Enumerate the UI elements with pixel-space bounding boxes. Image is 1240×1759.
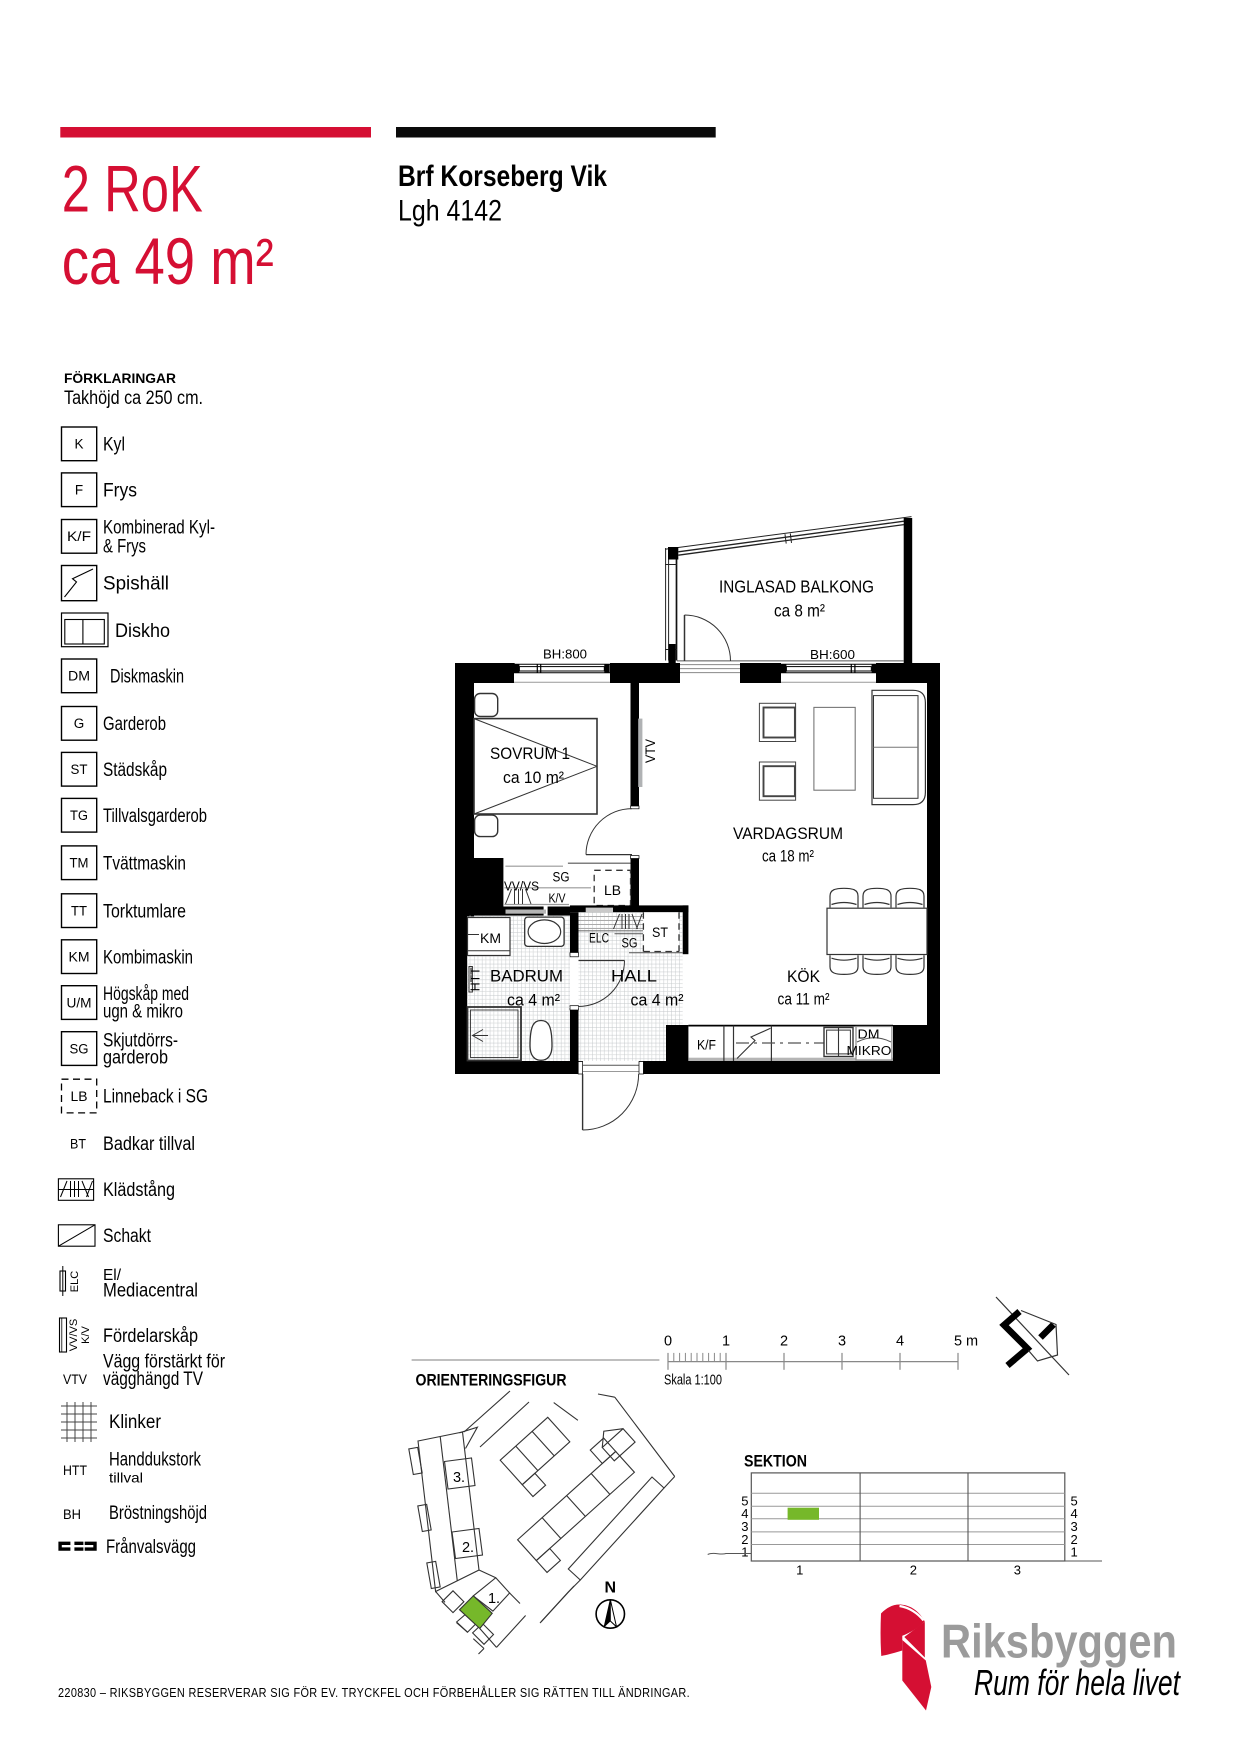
svg-text:1: 1 (741, 1545, 748, 1560)
svg-text:0: 0 (664, 1334, 672, 1350)
svg-text:Kombinerad Kyl-: Kombinerad Kyl- (103, 518, 215, 539)
svg-text:Riksbyggen: Riksbyggen (941, 1615, 1177, 1668)
svg-text:LB: LB (71, 1089, 88, 1104)
svg-text:SOVRUM 1: SOVRUM 1 (490, 744, 570, 763)
svg-text:VV/VS: VV/VS (68, 1319, 80, 1351)
svg-text:SEKTION: SEKTION (744, 1453, 807, 1471)
svg-text:K/V: K/V (80, 1325, 92, 1343)
svg-text:1: 1 (722, 1334, 730, 1350)
svg-text:ORIENTERINGSFIGUR: ORIENTERINGSFIGUR (416, 1372, 567, 1390)
svg-text:TM: TM (70, 856, 89, 871)
svg-text:Städskåp: Städskåp (103, 760, 167, 781)
svg-text:Diskho: Diskho (115, 621, 170, 642)
svg-text:m: m (966, 1334, 978, 1350)
svg-text:ca 4 m²: ca 4 m² (507, 990, 560, 1009)
svg-text:SG: SG (70, 1041, 89, 1056)
svg-text:Tvättmaskin: Tvättmaskin (103, 853, 186, 874)
svg-text:Frys: Frys (103, 480, 137, 501)
svg-text:Linneback i SG: Linneback i SG (103, 1087, 208, 1108)
svg-text:K/V: K/V (549, 891, 566, 906)
svg-text:ca 4 m²: ca 4 m² (631, 990, 684, 1009)
svg-text:1.: 1. (488, 1591, 500, 1607)
svg-text:VV/VS: VV/VS (504, 878, 539, 893)
svg-text:Kombimaskin: Kombimaskin (103, 947, 193, 968)
svg-text:VARDAGSRUM: VARDAGSRUM (733, 824, 843, 843)
svg-text:2: 2 (910, 1563, 917, 1578)
svg-text:2: 2 (780, 1334, 788, 1350)
svg-text:ca 49 m²: ca 49 m² (62, 225, 274, 298)
svg-text:Rum för hela livet: Rum för hela livet (974, 1662, 1181, 1703)
svg-text:ca 8 m²: ca 8 m² (774, 601, 825, 621)
svg-text:ca 11 m²: ca 11 m² (778, 989, 830, 1008)
svg-text:HALL: HALL (611, 966, 657, 985)
svg-text:HTT: HTT (469, 967, 483, 991)
svg-text:U/M: U/M (67, 995, 92, 1010)
svg-text:KM: KM (69, 949, 90, 964)
svg-text:Badkar tillval: Badkar tillval (103, 1134, 195, 1155)
svg-text:Spishäll: Spishäll (103, 574, 169, 595)
svg-text:Skala 1:100: Skala 1:100 (664, 1371, 722, 1388)
svg-text:Handdukstork: Handdukstork (109, 1450, 201, 1471)
svg-text:ca 18 m²: ca 18 m² (762, 847, 814, 866)
svg-text:Klädstång: Klädstång (103, 1180, 175, 1201)
svg-text:KM: KM (480, 931, 501, 946)
svg-text:garderob: garderob (103, 1048, 168, 1069)
svg-text:& Frys: & Frys (103, 537, 146, 558)
svg-text:vägghängd TV: vägghängd TV (103, 1369, 203, 1390)
svg-text:Takhöjd ca 250 cm.: Takhöjd ca 250 cm. (64, 388, 203, 409)
svg-text:ST: ST (652, 925, 668, 940)
svg-text:DM: DM (68, 669, 90, 684)
svg-text:Bröstningshöjd: Bröstningshöjd (109, 1503, 207, 1524)
svg-text:Tillvalsgarderob: Tillvalsgarderob (103, 806, 207, 827)
svg-text:TG: TG (70, 808, 88, 823)
svg-text:KÖK: KÖK (787, 967, 821, 986)
svg-text:Lgh 4142: Lgh 4142 (398, 195, 502, 228)
svg-text:MIKRO: MIKRO (847, 1043, 892, 1058)
svg-text:SG: SG (622, 935, 638, 950)
svg-text:5: 5 (954, 1334, 962, 1350)
svg-text:3: 3 (838, 1334, 846, 1350)
svg-text:3.: 3. (453, 1470, 465, 1486)
svg-text:ELC: ELC (589, 931, 609, 946)
svg-text:Torktumlare: Torktumlare (103, 901, 186, 922)
svg-text:BH: BH (63, 1507, 81, 1522)
svg-text:DM: DM (858, 1026, 880, 1041)
svg-text:1: 1 (1071, 1545, 1078, 1560)
svg-text:BH:600: BH:600 (810, 648, 855, 662)
svg-text:Brf Korseberg Vik: Brf Korseberg Vik (398, 160, 607, 193)
svg-text:BH:800: BH:800 (543, 647, 587, 661)
svg-text:3: 3 (1014, 1563, 1021, 1578)
svg-text:ugn & mikro: ugn & mikro (103, 1001, 183, 1022)
svg-text:ELC: ELC (69, 1271, 81, 1292)
svg-text:2 RoK: 2 RoK (62, 153, 203, 226)
svg-text:HTT: HTT (63, 1463, 87, 1478)
svg-text:220830 – RIKSBYGGEN RESERVERAR: 220830 – RIKSBYGGEN RESERVERAR SIG FÖR E… (58, 1685, 690, 1700)
svg-text:4: 4 (896, 1334, 904, 1350)
svg-text:Diskmaskin: Diskmaskin (110, 667, 184, 688)
svg-text:1: 1 (796, 1563, 803, 1578)
svg-text:N: N (605, 1580, 617, 1597)
svg-text:K: K (74, 437, 83, 452)
svg-text:Klinker: Klinker (109, 1412, 162, 1433)
svg-text:tillval: tillval (109, 1469, 143, 1485)
svg-text:Kyl: Kyl (103, 435, 125, 456)
svg-text:TT: TT (71, 903, 87, 918)
svg-text:Garderob: Garderob (103, 714, 166, 735)
svg-text:INGLASAD BALKONG: INGLASAD BALKONG (719, 577, 874, 597)
svg-text:VTV: VTV (63, 1372, 87, 1387)
svg-text:K/F: K/F (697, 1037, 716, 1052)
svg-text:BT: BT (70, 1137, 86, 1152)
svg-text:Frånvalsvägg: Frånvalsvägg (106, 1537, 196, 1558)
svg-text:SG: SG (553, 869, 570, 884)
svg-text:FÖRKLARINGAR: FÖRKLARINGAR (64, 371, 176, 386)
svg-text:ST: ST (71, 762, 88, 777)
svg-text:ca 10 m²: ca 10 m² (503, 768, 564, 787)
svg-text:BADRUM: BADRUM (490, 966, 563, 985)
svg-text:LB: LB (604, 882, 621, 898)
svg-text:K/F: K/F (67, 529, 91, 544)
svg-text:Fördelarskåp: Fördelarskåp (103, 1326, 198, 1347)
svg-text:Mediacentral: Mediacentral (103, 1281, 198, 1302)
svg-text:F: F (75, 483, 83, 498)
svg-text:Schakt: Schakt (103, 1226, 152, 1247)
svg-text:2.: 2. (462, 1540, 474, 1556)
svg-text:VTV: VTV (643, 739, 658, 763)
svg-text:G: G (74, 716, 85, 731)
